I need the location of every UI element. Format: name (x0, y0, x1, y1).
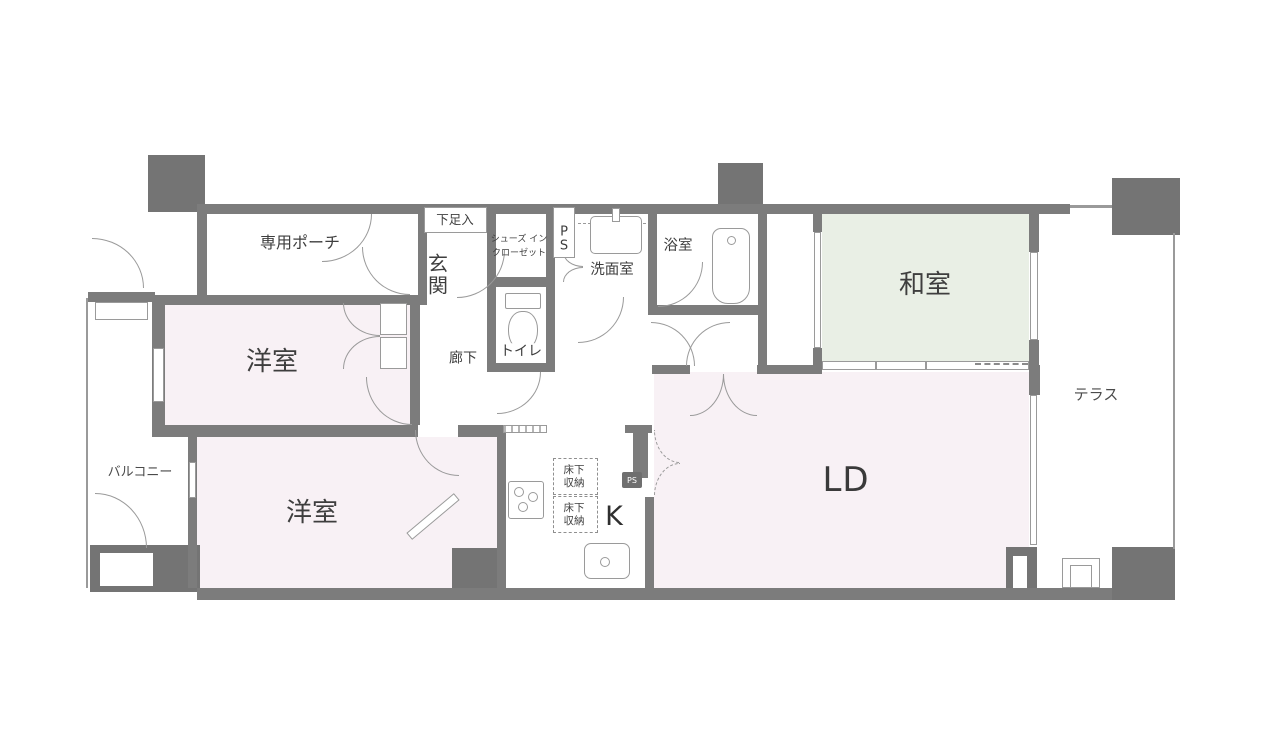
wall (487, 204, 496, 372)
wall (487, 277, 555, 287)
underfloor-storage-label: 床下収納 (564, 464, 588, 489)
door-arc (578, 297, 624, 343)
door-arc (686, 322, 730, 366)
washbasin-tap (612, 208, 620, 222)
window (1030, 252, 1038, 340)
door-arc (95, 493, 147, 548)
door-arc (497, 372, 541, 414)
corridor-label: 廊下 (449, 350, 477, 368)
window (1030, 395, 1037, 545)
wall (497, 433, 506, 588)
terrace-faucet-inner (1070, 565, 1092, 588)
wall (758, 204, 767, 372)
wall-notch (100, 553, 153, 586)
shoes-in-closet-label: シューズ イン クローゼット (491, 234, 547, 261)
vent-hatch (503, 425, 547, 433)
living-dining-label: LD (822, 459, 869, 502)
wall (1029, 212, 1039, 252)
terrace-label: テラス (1074, 386, 1119, 405)
wall (487, 363, 555, 372)
stove-burner (514, 487, 524, 497)
closet-door-leaf (380, 337, 407, 369)
stove (508, 481, 544, 519)
wall (648, 305, 767, 315)
sliding-track-dashed (975, 363, 1028, 365)
western-room-lower-label: 洋室 (286, 497, 338, 530)
private-porch-label: 専用ポーチ (260, 233, 340, 253)
japanese-room-label: 和室 (899, 269, 951, 302)
door-arc (92, 238, 144, 288)
wall (88, 292, 155, 302)
door-arc (658, 262, 703, 307)
sliding-track-tick (875, 361, 877, 370)
kitchen-label: K (605, 500, 623, 534)
stove-burner (528, 492, 538, 502)
wall (813, 212, 822, 232)
wall-block (452, 548, 497, 588)
pipe-space-entry-label: PS (559, 209, 570, 254)
sink-drain (600, 557, 610, 567)
entrance-label: 玄関 (427, 228, 449, 299)
wall (813, 348, 822, 372)
underfloor-storage-box: 床下収納 (553, 458, 598, 495)
balcony-label: バルコニー (108, 465, 173, 481)
corner-block (1112, 178, 1180, 235)
wall (197, 204, 207, 302)
wall-notch (95, 302, 148, 320)
toilet-label: トイレ (500, 343, 542, 361)
door-arc (362, 247, 410, 295)
sliding-track-tick (925, 361, 927, 370)
bathtub-faucet (727, 236, 736, 245)
wall (652, 365, 690, 374)
stove-burner (518, 502, 528, 512)
shoe-cabinet-label: 下足入 (436, 212, 474, 228)
toilet-tank (505, 293, 541, 309)
wall (197, 588, 1112, 600)
floor-plan: 床下収納 床下収納 PS 専用ポーチ 下足入 玄関 シューズ イン クローゼット… (0, 0, 1269, 750)
wall (188, 428, 197, 588)
corner-block (1112, 547, 1175, 600)
wall (197, 204, 1070, 214)
bathroom-label: 浴室 (664, 237, 693, 255)
western-room-upper-label: 洋室 (246, 346, 298, 379)
wall (648, 204, 657, 315)
underfloor-storage-box: 床下収納 (553, 496, 598, 533)
terrace-edge (1173, 233, 1175, 549)
window (153, 348, 164, 402)
window (189, 462, 196, 498)
wall (1029, 340, 1039, 365)
terrace-door-opening (1013, 556, 1027, 588)
pipe-space-badge-label: PS (627, 476, 637, 485)
balcony-edge (86, 298, 88, 588)
closet-door-leaf (380, 303, 407, 335)
wall (645, 497, 654, 588)
washroom-label: 洗面室 (590, 261, 634, 279)
wall (633, 428, 648, 478)
underfloor-storage-label: 床下収納 (564, 502, 588, 527)
wall (1070, 205, 1112, 208)
wall (1029, 365, 1040, 395)
bifold-door-arc (563, 267, 583, 282)
pipe-space-badge: PS (622, 472, 642, 488)
sliding-door (814, 232, 821, 348)
